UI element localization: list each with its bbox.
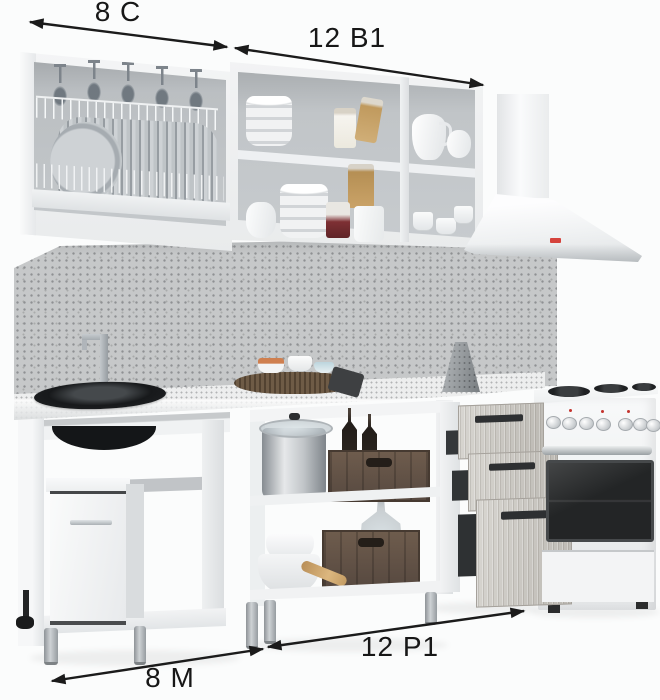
under-counter-sink-bowl (52, 426, 156, 450)
tray-bowl (258, 358, 284, 373)
flour-jar (334, 108, 356, 148)
cabinet-leg (425, 592, 437, 625)
mini-cabinet-top (46, 478, 130, 492)
stove-knob (618, 418, 633, 431)
burner (594, 384, 628, 393)
cup (413, 212, 433, 231)
dimension-label-8c: 8 С (48, 0, 188, 28)
cup (436, 218, 456, 235)
berry-jar (326, 202, 350, 238)
dimension-label-12v1: 12 В1 (267, 22, 427, 54)
oven-storage-drawer (542, 550, 654, 602)
drawer-handle (475, 414, 523, 423)
cabinet-leg (246, 602, 258, 649)
tray-bowl (288, 356, 312, 371)
milk-jug (246, 202, 276, 238)
range-hood-canopy (464, 192, 642, 262)
indicator-dot (627, 410, 630, 413)
foot-pad (16, 616, 34, 629)
stove-knob (596, 418, 611, 431)
wall-cabinet-left (20, 46, 232, 252)
indicator-dot (569, 409, 572, 412)
cup (454, 206, 473, 224)
cabinet-side-panel (20, 50, 36, 236)
stock-pot (262, 428, 326, 500)
tray-bowl (314, 362, 334, 373)
adjustable-foot (16, 590, 36, 632)
stove-knob (646, 419, 660, 432)
range-hood-chimney (497, 94, 549, 198)
drawer-handle (501, 510, 547, 520)
cabinet-leg (134, 626, 146, 665)
cabinet-leg (264, 600, 276, 644)
oven-handle (542, 446, 652, 455)
indicator-dot (601, 410, 604, 413)
foot-stem (23, 590, 29, 618)
serving-tray (230, 354, 362, 396)
stove-knob (562, 417, 577, 430)
pitcher (412, 114, 446, 160)
kitchen-cloth (327, 366, 364, 398)
stacked-bowls (246, 96, 292, 146)
dimension-label-12p1: 12 Р1 (325, 631, 475, 663)
cabinet-leg (44, 628, 58, 665)
drawer-handle (489, 462, 535, 471)
cabinet-divider (400, 66, 409, 242)
dimension-label-8m: 8 М (100, 662, 240, 694)
burner (548, 386, 590, 397)
base-frame-right-panel (202, 420, 224, 614)
kitchen-set-product-photo: 8 С 12 В1 8 М 12 Р1 (0, 0, 660, 700)
canister (354, 206, 384, 242)
burner (632, 383, 656, 391)
mini-cabinet-handle (70, 520, 112, 525)
wall-cabinet-middle (230, 56, 483, 250)
stove-knob (579, 417, 594, 430)
mini-cabinet (46, 478, 148, 628)
mini-cabinet-side (126, 484, 144, 618)
small-jug (447, 130, 471, 158)
nut-jar (348, 164, 374, 208)
hood-logo-badge (550, 238, 561, 243)
oven-window (546, 460, 654, 542)
stove-knob (546, 416, 561, 429)
stacked-bowls (280, 184, 328, 238)
mini-cabinet-door (50, 491, 126, 625)
